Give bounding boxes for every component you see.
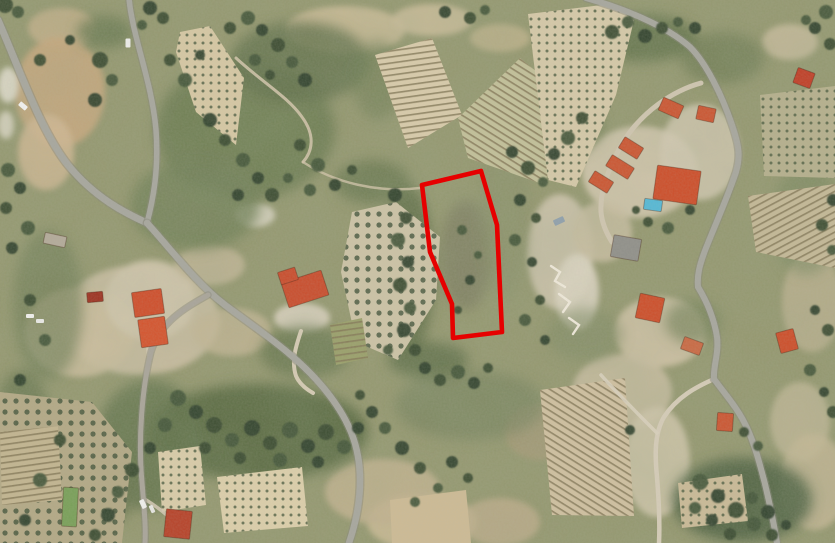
photo-grain-overlay [0, 0, 835, 543]
satellite-map-svg [0, 0, 835, 543]
satellite-image [0, 0, 835, 543]
